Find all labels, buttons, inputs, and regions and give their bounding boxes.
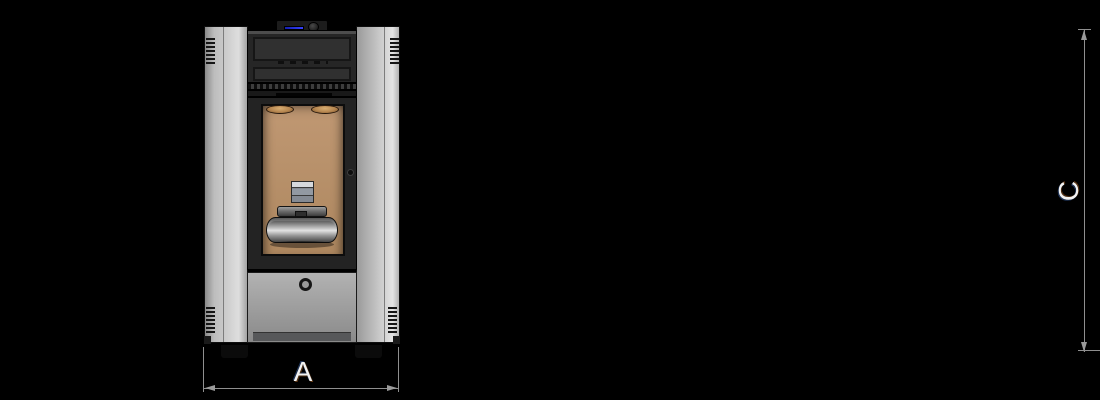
dim-c-line: [1084, 29, 1085, 352]
panel-seam: [384, 27, 385, 342]
chute-band: [292, 182, 313, 188]
vent-slots-bottom-left: [206, 307, 215, 334]
dim-a-extension-left: [203, 347, 204, 392]
panel-seam: [223, 27, 224, 342]
dim-c-label: C: [1054, 177, 1084, 205]
vent-slots-top-right: [390, 38, 399, 65]
front-view: A: [0, 0, 440, 400]
burn-pot-shadow: [270, 241, 334, 248]
grille-lower-strip: [247, 90, 357, 97]
dim-c-tick-bottom: [1078, 350, 1100, 351]
air-tube-left: [266, 105, 294, 114]
dim-a-arrow-right: [387, 385, 397, 391]
door-latch-hole: [347, 169, 354, 176]
hood-top-edge: [248, 31, 356, 34]
ash-pan-door: [247, 272, 357, 343]
stove-dimension-diagram: A C: [0, 0, 1100, 400]
top-hood: [247, 30, 357, 83]
side-view: C B F: [440, 0, 1100, 400]
pellet-chute: [291, 181, 314, 203]
dim-c-arrow-top: [1081, 30, 1087, 40]
ash-door-knob: [299, 278, 312, 291]
door-glass-window: [261, 104, 345, 256]
base-corner-right: [393, 336, 400, 344]
hood-lower-panel: [253, 67, 351, 81]
grille-slot: [276, 93, 332, 96]
air-outlet-grille: [247, 83, 357, 90]
ash-door-bottom-strip: [253, 332, 351, 341]
chute-band: [292, 189, 313, 196]
firebox-door: [247, 97, 357, 270]
front-foot-right: [355, 345, 382, 358]
front-foot-left: [221, 345, 248, 358]
dim-a-line: [203, 388, 399, 389]
dim-a-extension-right: [398, 347, 399, 392]
hood-vent-notches: [278, 61, 328, 64]
hood-upper-panel: [253, 37, 351, 61]
burn-pot: [266, 217, 338, 243]
base-corner-left: [204, 336, 211, 344]
vent-slots-bottom-right: [388, 307, 397, 334]
front-left-side-panel: [204, 26, 248, 343]
front-right-side-panel: [356, 26, 400, 343]
vent-slots-top-left: [206, 38, 215, 65]
dim-a-label: A: [283, 357, 323, 387]
air-tube-right: [311, 105, 339, 114]
dim-a-arrow-left: [205, 385, 215, 391]
